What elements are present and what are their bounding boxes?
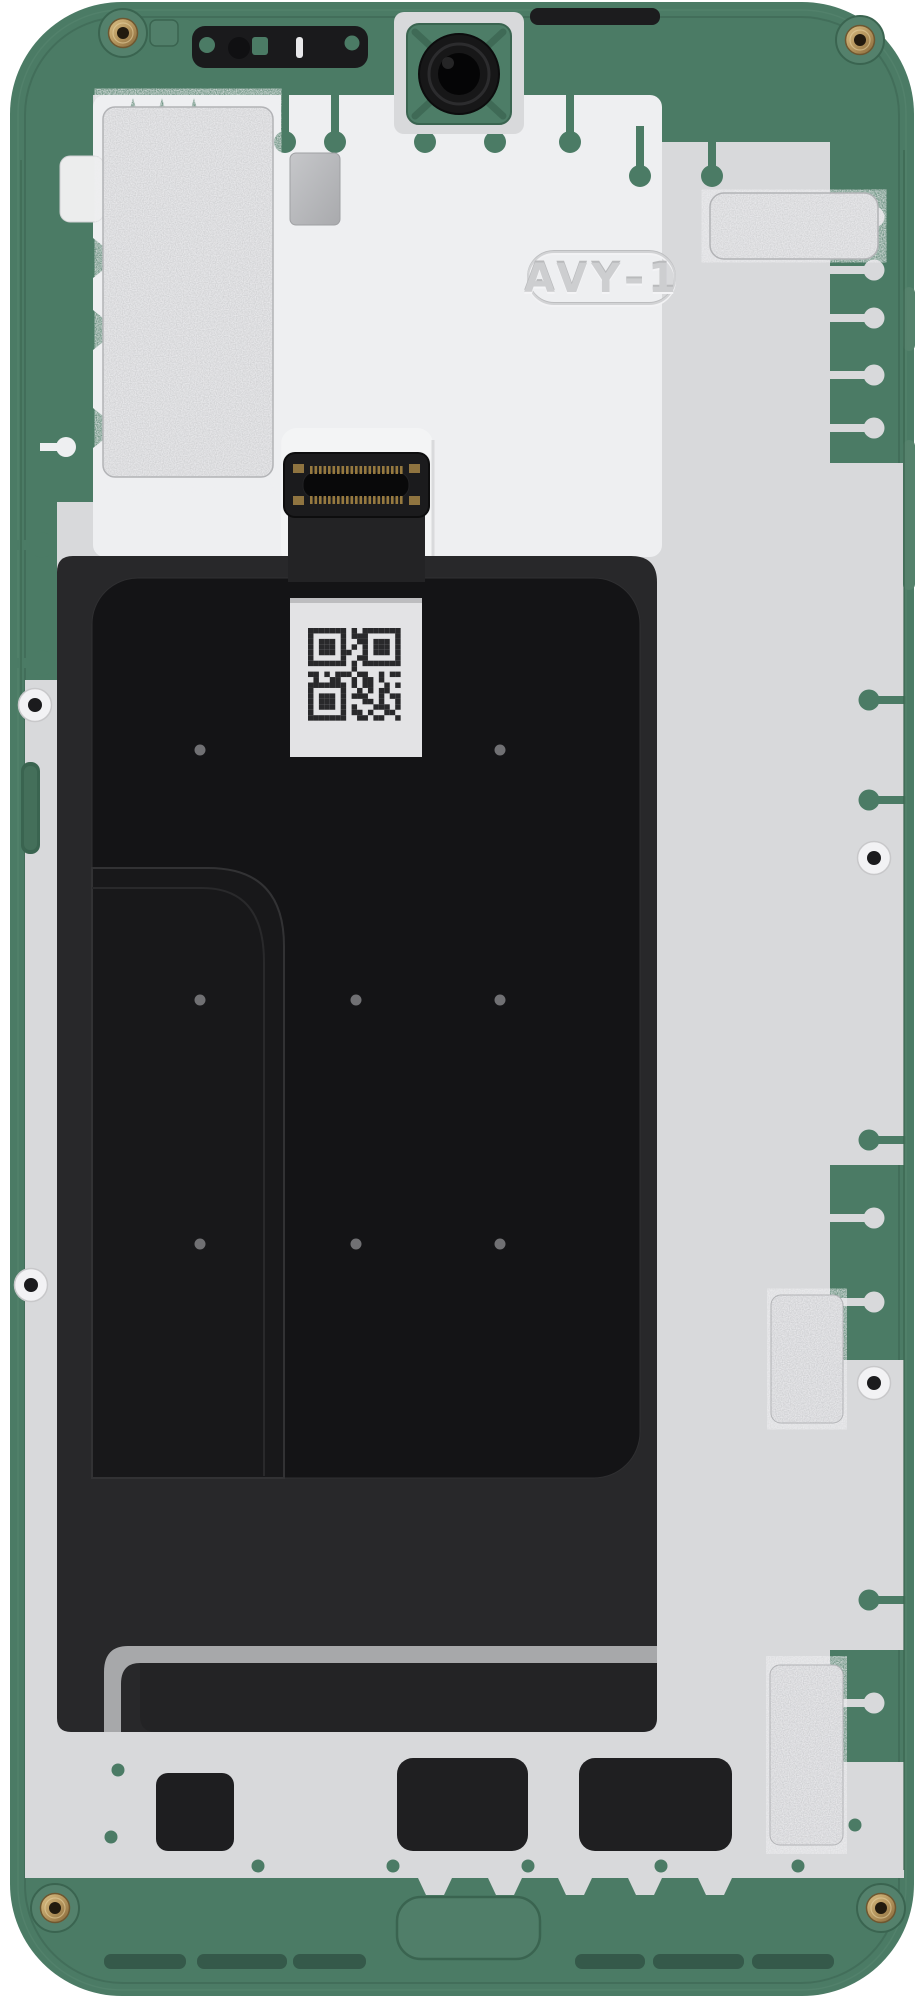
side-button-recess [21,762,40,854]
puzzle-tab [56,437,76,457]
screw-top-left [99,9,147,57]
usb-recess [397,1897,540,1959]
flex-cable [288,510,425,582]
emi-sticker-right-upper [771,1295,843,1423]
model-marking: AVY–1 AVY–1 AVY–1 [524,251,680,306]
emi-sticker-large [103,107,273,477]
screw-top-right [836,16,884,64]
earpiece-slit [296,37,303,58]
screw-right-upper [858,842,891,875]
display-connector [283,452,430,518]
top-antenna-slot [530,8,660,25]
bottom-cutout [397,1758,528,1851]
camera-housing [394,12,524,134]
screw-right-lower [858,1367,891,1400]
emi-sticker-right-lower [770,1665,843,1845]
lens-highlight [442,57,454,69]
bottom-cutout [579,1758,732,1851]
left-clip-tab [60,156,104,222]
metal-square-patch [290,153,340,225]
sensor-window [199,37,215,53]
emi-sticker-top-right [710,193,878,259]
puzzle-tab [30,651,55,676]
earpiece-sensor-bar [192,26,368,68]
sensor-window [345,36,360,51]
top-frame-tab [150,20,178,46]
flex-groove [92,868,284,1478]
front-camera-hole [228,37,250,59]
bottom-cutout [156,1773,234,1851]
screw-left-upper [19,689,52,722]
screw-bottom-right [857,1884,905,1932]
puzzle-tab [30,533,55,558]
plate-right-ext-1 [830,463,904,1165]
model-marking-text: AVY–1 [524,256,680,302]
screw-bottom-left [31,1884,79,1932]
qr-label [290,598,422,757]
screw-left-lower [15,1269,48,1302]
lower-graphite-layer [140,1663,657,1732]
phone-midframe-photo: AVY–1 AVY–1 AVY–1 [0,0,922,2000]
sensor-window [252,37,268,55]
